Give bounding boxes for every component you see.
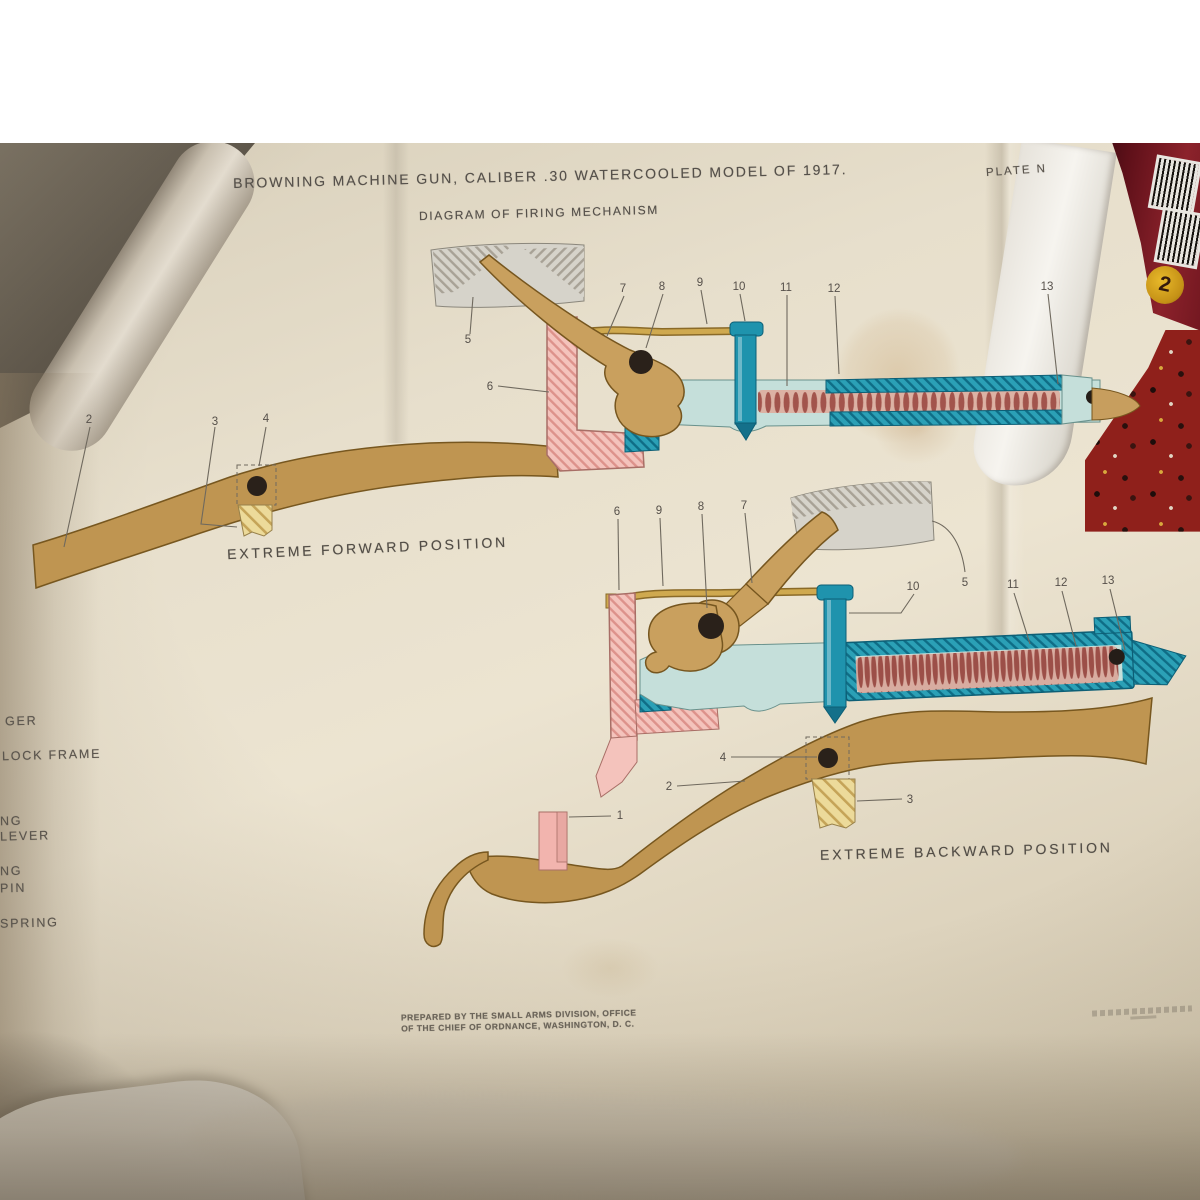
photo-vignette [0,143,1200,1200]
legend-fragment: NG [0,814,23,829]
legend-fragment: LEVER [0,828,50,843]
legend-fragment: NG [0,864,23,879]
legend-fragment: PIN [0,881,26,896]
photo-of-ordnance-chart: 2 [0,0,1200,1200]
legend-fragment: LOCK FRAME [2,747,102,764]
legend-fragment: SPRING [0,915,59,931]
poster-sheet: 2 [0,143,1200,1200]
legend-fragment: GER [5,714,38,729]
